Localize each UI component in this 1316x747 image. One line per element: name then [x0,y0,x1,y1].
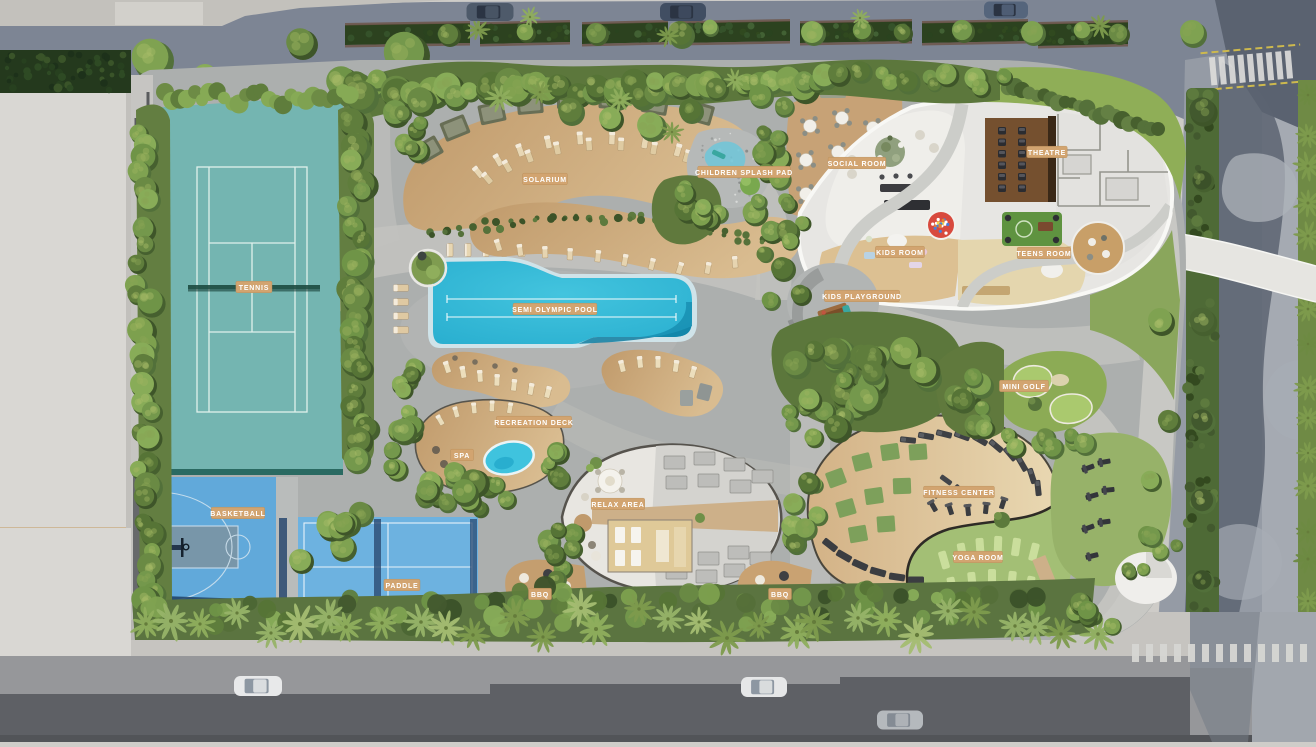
svg-text:KIDS ROOM: KIDS ROOM [876,250,924,257]
svg-text:THEATRE: THEATRE [1028,150,1066,157]
svg-text:PADDLE: PADDLE [385,583,418,590]
svg-text:TEENS ROOM: TEENS ROOM [1016,251,1071,258]
svg-text:MINI GOLF: MINI GOLF [1002,384,1045,391]
svg-text:SPA: SPA [454,453,470,460]
svg-text:BBQ: BBQ [531,592,549,599]
svg-text:BASKETBALL: BASKETBALL [210,511,265,518]
svg-text:RECREATION DECK: RECREATION DECK [494,420,574,427]
svg-text:FITNESS CENTER: FITNESS CENTER [923,490,994,497]
svg-text:RELAX AREA: RELAX AREA [591,502,644,509]
svg-text:YOGA ROOM: YOGA ROOM [952,555,1003,562]
svg-text:SOCIAL ROOM: SOCIAL ROOM [828,161,887,168]
svg-text:KIDS PLAYGROUND: KIDS PLAYGROUND [822,294,902,301]
svg-text:CHILDREN SPLASH PAD: CHILDREN SPLASH PAD [695,170,793,177]
svg-text:SEMI OLYMPIC POOL: SEMI OLYMPIC POOL [512,307,598,314]
svg-text:BBQ: BBQ [771,592,789,599]
svg-text:TENNIS: TENNIS [239,285,269,292]
svg-text:SOLARIUM: SOLARIUM [523,177,567,184]
